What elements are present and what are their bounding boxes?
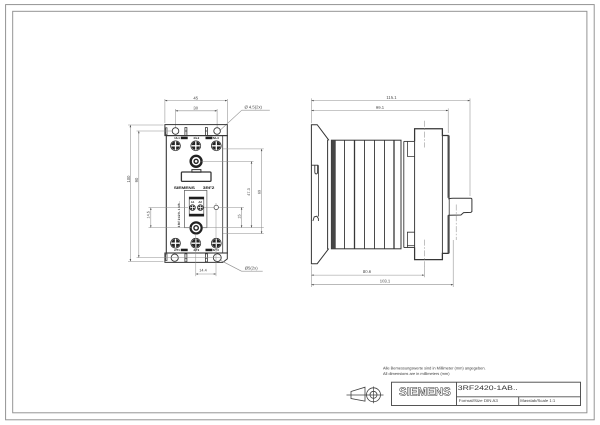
svg-text:SIEMENS: SIEMENS: [399, 385, 451, 398]
svg-text:47.3: 47.3: [247, 188, 251, 195]
svg-text:Masstab/Scale 1:1: Masstab/Scale 1:1: [520, 398, 556, 403]
svg-text:A1: A1: [191, 200, 195, 204]
svg-text:90: 90: [134, 177, 139, 182]
svg-text:14.5: 14.5: [147, 211, 151, 218]
svg-text:A2: A2: [198, 200, 202, 204]
svg-text:Ø 4.5(2x): Ø 4.5(2x): [245, 105, 263, 110]
svg-text:115.1: 115.1: [386, 95, 397, 100]
svg-text:3RF2420-1AB..: 3RF2420-1AB..: [458, 385, 518, 392]
svg-text:99.1: 99.1: [376, 105, 385, 110]
svg-text:30: 30: [193, 105, 198, 110]
svg-text:SIEMENS: SIEMENS: [174, 186, 196, 190]
svg-text:15: 15: [237, 214, 241, 218]
svg-text:Format/Size DIN A3: Format/Size DIN A3: [459, 398, 499, 403]
svg-text:45: 45: [193, 95, 198, 100]
svg-text:3/L2: 3/L2: [193, 136, 199, 140]
svg-text:Alle Bemessungswerte sind in M: Alle Bemessungswerte sind in Millimeter …: [383, 366, 486, 371]
svg-text:4/T2: 4/T2: [193, 248, 199, 252]
svg-text:103.1: 103.1: [380, 278, 391, 283]
svg-text:80.6: 80.6: [363, 269, 372, 274]
svg-text:14.4: 14.4: [199, 269, 206, 273]
svg-text:2/T1: 2/T1: [174, 248, 180, 252]
svg-text:1/L1: 1/L1: [174, 136, 180, 140]
svg-text:69: 69: [257, 190, 261, 194]
svg-text:3RF2: 3RF2: [203, 186, 215, 190]
svg-text:All dimensions are in millimet: All dimensions are in millimeters (mm): [383, 371, 450, 376]
svg-text:3RF2420-1AB..: 3RF2420-1AB..: [177, 200, 181, 227]
svg-text:100: 100: [126, 175, 131, 183]
svg-text:Ø5(2x): Ø5(2x): [245, 266, 258, 271]
svg-text:5/L3: 5/L3: [213, 136, 219, 140]
